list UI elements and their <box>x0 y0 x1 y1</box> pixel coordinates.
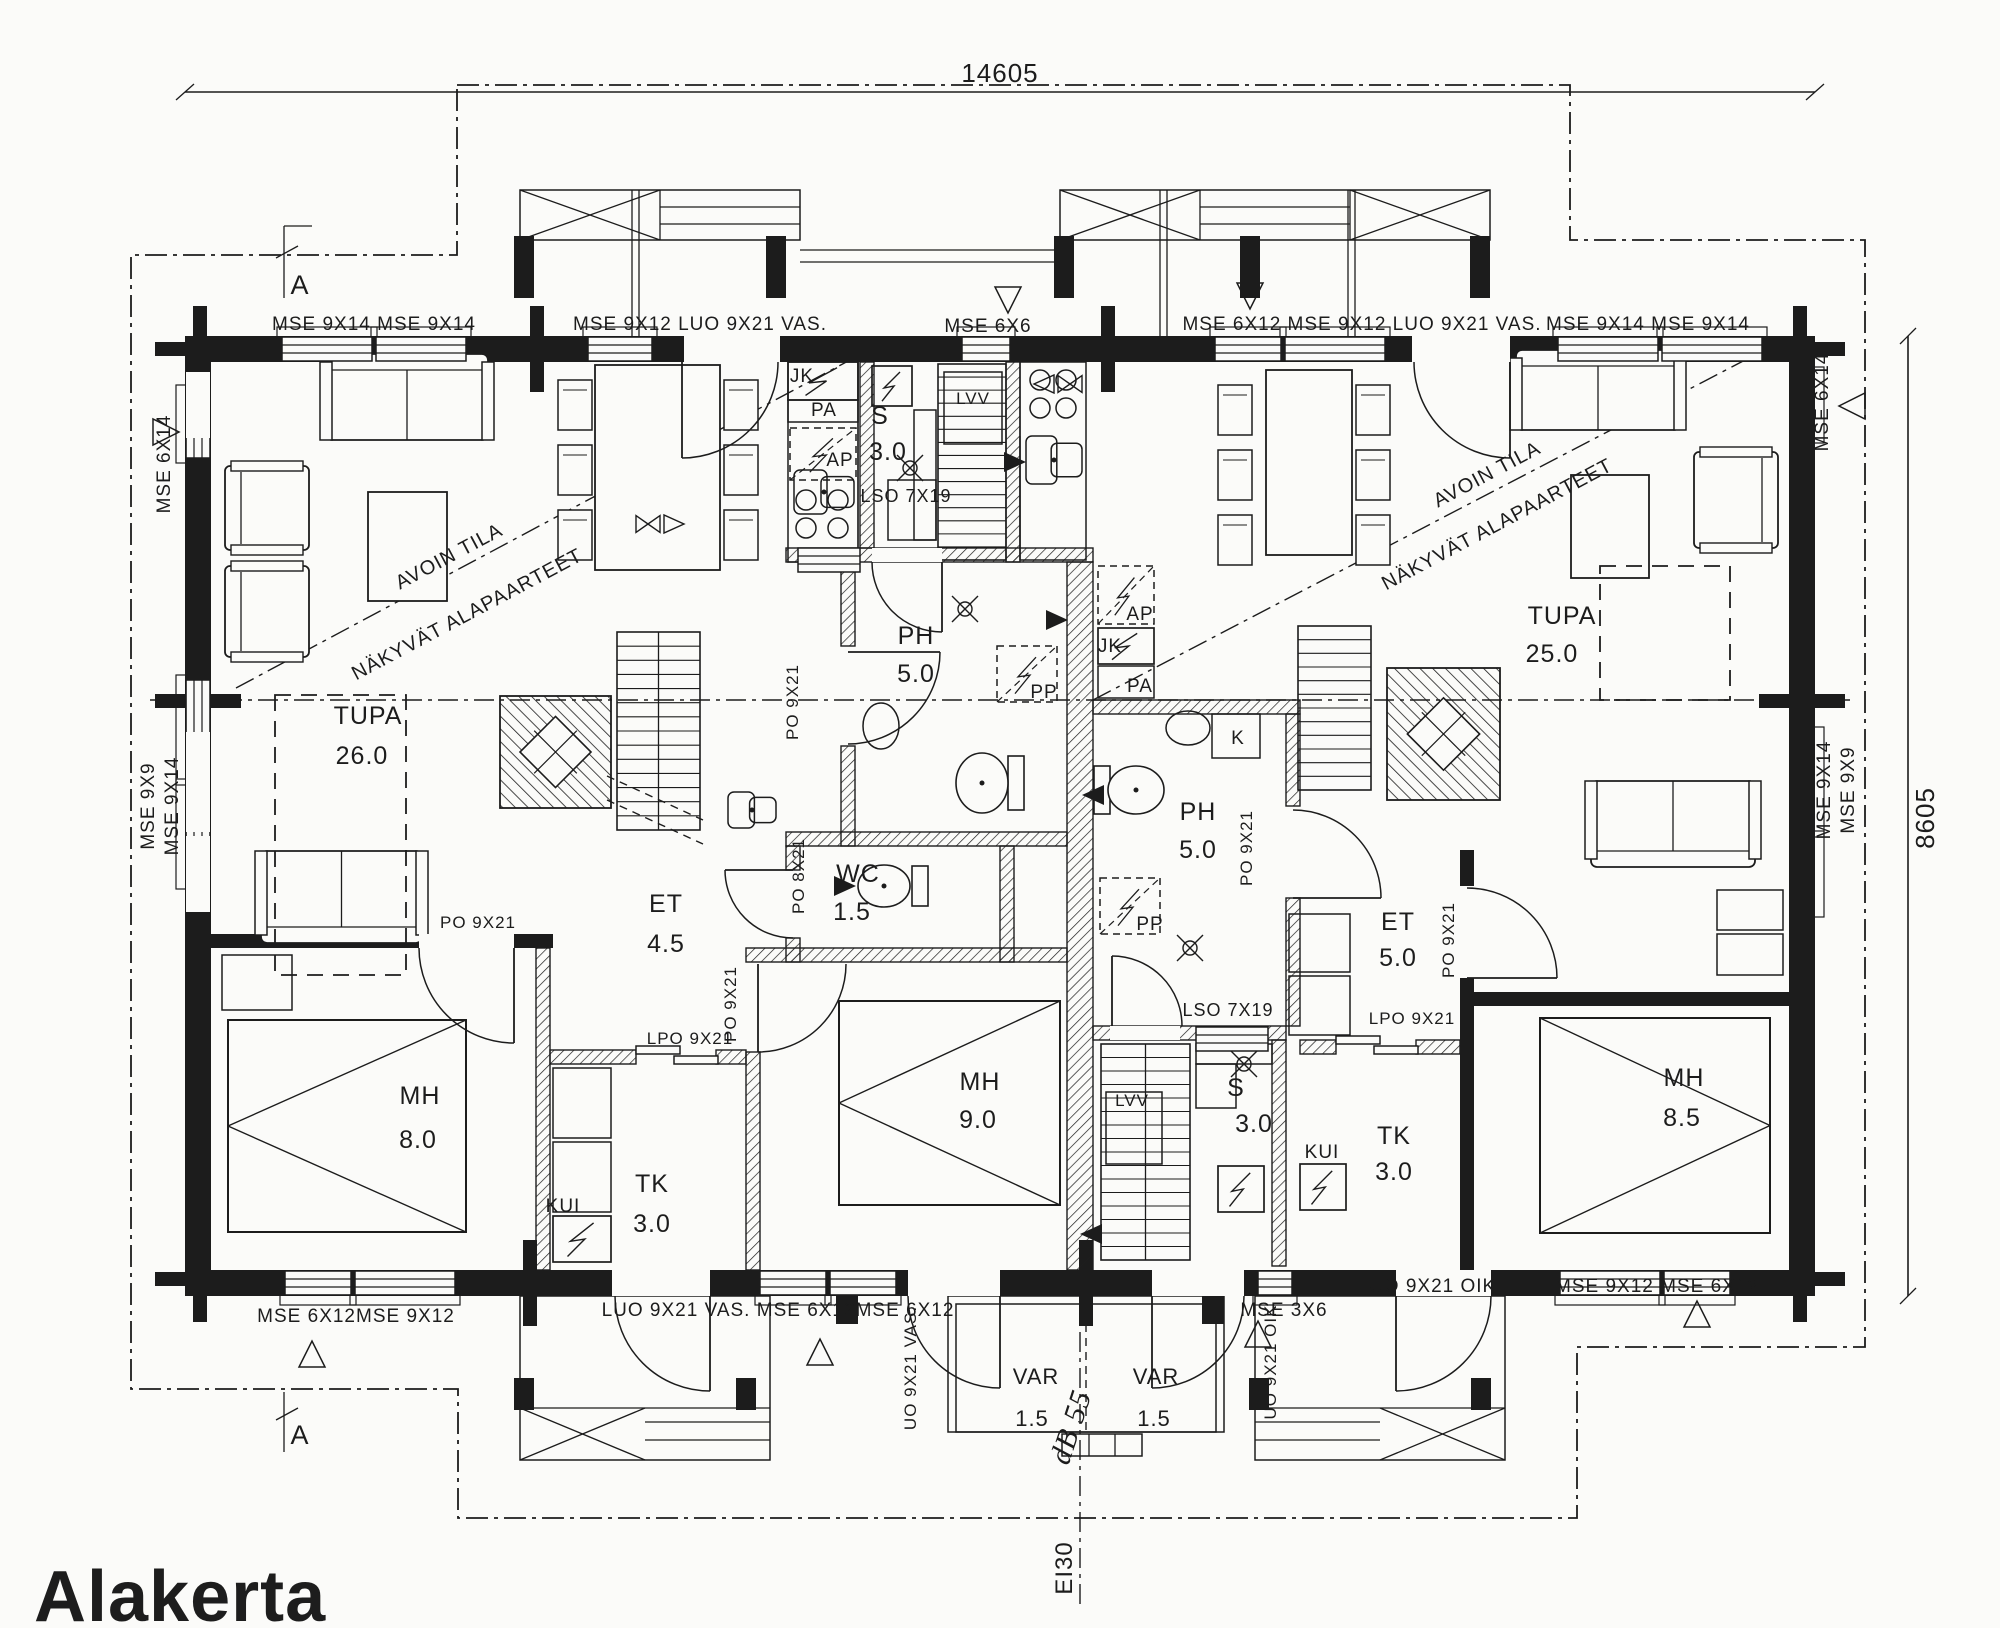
wall <box>1471 1378 1491 1410</box>
plan-label: UO 9X21 OIK <box>1261 1305 1280 1420</box>
door-swing-arc <box>1414 362 1510 458</box>
rect <box>231 561 303 571</box>
plan-label: TUPA <box>1528 602 1597 630</box>
stove-burner <box>1030 398 1050 418</box>
dining-chair <box>1218 515 1252 565</box>
plan-label: 8605 <box>1910 787 1940 849</box>
door-swing-arc <box>1293 810 1381 898</box>
table <box>595 365 720 570</box>
plan-label: LVV <box>1115 1091 1149 1110</box>
plan-label: 8.0 <box>399 1126 437 1154</box>
sink-tap <box>750 808 755 813</box>
rect <box>1700 447 1772 457</box>
plan-label: A <box>290 270 309 300</box>
plan-label: MSE 6X14 <box>1812 353 1833 452</box>
door-gap <box>684 336 780 362</box>
window-gap <box>186 372 210 438</box>
plan-label: MH <box>960 1068 1001 1096</box>
toilet-dot <box>980 781 985 786</box>
wet-wall <box>786 832 1067 846</box>
plan-label: WC <box>836 860 880 888</box>
plan-label: TK <box>1377 1122 1411 1150</box>
wall <box>1759 694 1845 708</box>
wet-wall <box>746 1052 760 1270</box>
plan-label: MSE 6X12 MSE 9X12 LUO 9X21 VAS. <box>1182 314 1541 335</box>
plan-label: JK <box>1098 636 1122 657</box>
plan-label: 9.0 <box>959 1106 997 1134</box>
plan-label: MH <box>400 1082 441 1110</box>
wet-wall <box>550 1050 636 1064</box>
window-gap <box>1258 1271 1292 1295</box>
plan-label: MSE 6X12MSE 9X12 <box>257 1306 455 1327</box>
direction-arrow <box>1046 610 1068 630</box>
plan-label: ET <box>649 890 683 918</box>
stove-burner <box>1056 398 1076 418</box>
dining-chair <box>724 445 758 495</box>
door-gap <box>419 934 514 948</box>
plan-label: VAR <box>1133 1364 1180 1389</box>
wall <box>530 306 544 392</box>
plan-label: LSO 7X19 <box>1182 1000 1273 1020</box>
dining-chair <box>1356 515 1390 565</box>
floor-plan-sheet: 146058605MSE 9X14 MSE 9X14MSE 9X12 LUO 9… <box>0 0 2000 1628</box>
window-gap <box>186 732 210 832</box>
plan-label: MSE 9X9 <box>138 762 159 849</box>
page-title: Alakerta <box>34 1556 326 1628</box>
wet-wall <box>1416 1040 1460 1054</box>
rect <box>1510 358 1522 430</box>
rect <box>320 362 332 440</box>
wall <box>523 1240 537 1326</box>
plan-label: PH <box>1180 798 1217 826</box>
zigzag-symbol <box>568 1223 594 1257</box>
door-gap <box>1412 336 1510 362</box>
door-gap <box>872 548 942 562</box>
fixture <box>222 955 292 1010</box>
zigzag-symbol <box>1230 1173 1251 1207</box>
basin <box>1166 711 1210 745</box>
plan-label: MSE 9X14 <box>162 757 183 856</box>
wall <box>1240 236 1260 298</box>
wall <box>1789 336 1815 1296</box>
wet-wall <box>1000 846 1014 962</box>
plan-label: MH <box>1664 1064 1705 1092</box>
plan-label: K <box>1231 728 1245 749</box>
plan-label: MSE 9X14 <box>1814 741 1835 840</box>
window-gap <box>1285 337 1385 361</box>
plan-label: S <box>871 402 889 430</box>
plan-label: PO 9X21 <box>783 664 802 740</box>
wet-wall <box>1300 1040 1336 1054</box>
plan-label: PO 9X21 <box>1237 810 1256 886</box>
door-gap <box>1152 1270 1244 1296</box>
wall <box>1460 850 1474 886</box>
window-gap <box>760 1271 826 1295</box>
rect <box>482 362 494 440</box>
door-swing-arc <box>1396 1296 1491 1391</box>
rect <box>231 545 303 555</box>
plan-label: AP <box>1126 604 1153 625</box>
door-swing-arc <box>1112 956 1182 1026</box>
wet-wall <box>1067 562 1093 1270</box>
plan-label: PO 9X21 <box>1439 902 1458 978</box>
rect <box>255 851 267 935</box>
door-swing-arc <box>1467 888 1557 978</box>
wall <box>1101 306 1115 392</box>
plan-label: 26.0 <box>336 742 389 770</box>
window-gap <box>285 1271 351 1295</box>
vent-triangle <box>299 1341 325 1367</box>
zigzag-symbol <box>882 372 900 401</box>
plan-label: 3.0 <box>1235 1110 1273 1138</box>
window-gap <box>1196 1027 1268 1051</box>
plan-label: MSE 9X14 MSE 9X14 <box>272 314 476 335</box>
rect <box>1674 358 1686 430</box>
dashed-line <box>607 800 703 844</box>
dining-chair <box>558 445 592 495</box>
rect <box>416 851 428 935</box>
window-sill <box>350 1295 460 1305</box>
stove-burner <box>796 490 816 510</box>
plan-label: PA <box>811 400 837 421</box>
plan-label: 1.5 <box>1015 1406 1049 1431</box>
zigzag-symbol <box>1312 1171 1333 1205</box>
plan-label: MSE 6X6 <box>944 316 1031 337</box>
wet-wall <box>841 562 855 646</box>
dining-chair <box>724 380 758 430</box>
bed <box>839 1001 1060 1205</box>
wet-wall <box>746 948 1067 962</box>
plan-label: EI30 <box>1051 1541 1078 1594</box>
plan-label: AP <box>826 450 853 471</box>
wall <box>1202 1296 1224 1324</box>
table <box>1266 370 1352 555</box>
fixture <box>553 1068 611 1138</box>
plan-label: 25.0 <box>1526 640 1579 668</box>
fixture <box>1717 934 1783 975</box>
plan-label: PP <box>1030 682 1057 703</box>
plan-label: ET <box>1381 908 1415 936</box>
plan-label: 5.0 <box>897 660 935 688</box>
wall <box>155 1272 241 1286</box>
wall <box>1054 236 1074 298</box>
plan-label: A <box>290 1420 309 1450</box>
window-sill <box>176 385 186 463</box>
plan-label: KUI <box>1305 1142 1340 1163</box>
plan-label: VAR <box>1013 1364 1060 1389</box>
wall <box>1759 1272 1845 1286</box>
plan-label: 3.0 <box>869 438 907 466</box>
plan-label: TUPA <box>334 702 403 730</box>
armchair <box>225 466 309 550</box>
detail-line <box>276 1408 298 1420</box>
wall <box>1460 978 1474 1270</box>
window-gap <box>282 337 372 361</box>
bed <box>1540 1018 1770 1233</box>
door-swing-arc <box>758 964 846 1052</box>
plan-label: MSE 3X6 <box>1240 1300 1327 1321</box>
wall <box>514 236 534 298</box>
dining-chair <box>1356 450 1390 500</box>
plan-label: LUO 9X21 OIK. <box>1357 1276 1502 1297</box>
plan-label: PH <box>898 622 935 650</box>
plan-label: S <box>1227 1074 1245 1102</box>
window-gap <box>1558 337 1658 361</box>
wet-wall <box>841 746 855 846</box>
fixture <box>1717 890 1783 930</box>
window-sill <box>280 1295 356 1305</box>
wall <box>1474 992 1789 1006</box>
stove-burner <box>828 518 848 538</box>
furniture <box>176 84 1916 1460</box>
plan-label: 14605 <box>961 58 1038 88</box>
window-gap <box>962 337 1010 361</box>
plan-label: LPO 9X21 <box>647 1029 733 1048</box>
window-gap <box>798 548 860 572</box>
sliding-door <box>674 1056 718 1064</box>
door-swing-arc <box>725 870 793 938</box>
toilet-tank <box>1008 756 1024 810</box>
toilet-tank <box>912 866 928 906</box>
window-gap <box>355 1271 455 1295</box>
door-gap <box>1110 1026 1180 1040</box>
plan-label: 4.5 <box>647 930 685 958</box>
plan-label: 1.5 <box>1137 1406 1171 1431</box>
wall <box>155 342 241 356</box>
wall <box>736 1378 756 1410</box>
window-gap <box>1662 337 1762 361</box>
sink-tap <box>822 490 827 495</box>
window-gap <box>1215 337 1281 361</box>
plan-label: UO 9X21 VAS. <box>901 1306 920 1430</box>
stove-burner <box>796 518 816 538</box>
rect <box>1749 781 1761 859</box>
open-to-above-dashed <box>1600 566 1730 700</box>
dining-chair <box>1218 385 1252 435</box>
fixture <box>944 372 1002 444</box>
plan-label: LPO 9X21 <box>1369 1009 1455 1028</box>
dining-chair <box>558 380 592 430</box>
plan-label: 5.0 <box>1179 836 1217 864</box>
door-gap <box>908 1270 1000 1296</box>
armchair <box>225 566 309 657</box>
rect <box>1700 543 1772 553</box>
fixture <box>1060 190 1490 240</box>
window-gap <box>376 337 466 361</box>
wet-wall <box>1286 898 1300 1026</box>
window-gap <box>588 337 652 361</box>
plan-label: MSE 9X9 <box>1838 746 1859 833</box>
wall <box>1470 236 1490 298</box>
rect <box>231 461 303 471</box>
plan-label: MSE 9X12 LUO 9X21 VAS. <box>573 314 827 335</box>
plan-label: MSE 6X14 <box>154 415 175 514</box>
plan-label: LSO 7X19 <box>860 486 951 506</box>
dining-chair <box>1356 385 1390 435</box>
sink-tap <box>1052 458 1057 463</box>
wet-wall <box>716 1050 746 1064</box>
plan-label: KUI <box>546 1196 581 1217</box>
plan-label: MSE 9X12 MSE 6X12 <box>1555 1276 1759 1297</box>
dining-chair <box>1218 450 1252 500</box>
plan-label: 8.5 <box>1663 1104 1701 1132</box>
door-gap <box>612 1270 710 1296</box>
plan-label: 5.0 <box>1379 944 1417 972</box>
plan-label: 1.5 <box>833 898 871 926</box>
plan-label: PO 8X21 <box>789 838 808 914</box>
dining-chair <box>724 510 758 560</box>
detail-line <box>276 246 298 258</box>
dashed-line <box>607 776 703 820</box>
wet-wall <box>536 948 550 1270</box>
sliding-door <box>1374 1046 1418 1054</box>
window-sill <box>1814 831 1824 917</box>
plan-label: MSE 9X14 MSE 9X14 <box>1546 314 1750 335</box>
rect <box>1585 781 1597 859</box>
plan-label: LVV <box>956 389 990 408</box>
plan-label: PO 9X21 <box>440 913 516 932</box>
toilet-dot <box>882 884 887 889</box>
wall <box>514 1378 534 1410</box>
window-gap <box>186 836 210 912</box>
plan-label: PP <box>1136 914 1163 935</box>
plan-label: PA <box>1127 676 1153 697</box>
toilet-dot <box>1134 788 1139 793</box>
plan-label: 3.0 <box>1375 1158 1413 1186</box>
rect <box>231 652 303 662</box>
wet-wall <box>1272 1040 1286 1266</box>
armchair <box>1694 452 1778 548</box>
plan-label: 3.0 <box>633 1210 671 1238</box>
wall <box>766 236 786 298</box>
vent-triangle <box>995 287 1021 313</box>
vent-triangle <box>807 1339 833 1365</box>
floor-plan-drawing: 146058605MSE 9X14 MSE 9X14MSE 9X12 LUO 9… <box>0 0 2000 1628</box>
vent-triangle <box>1839 393 1865 419</box>
plan-label: TK <box>635 1170 669 1198</box>
sliding-door <box>1336 1036 1380 1044</box>
plan-label: JK <box>790 366 814 387</box>
window-gap <box>830 1271 896 1295</box>
